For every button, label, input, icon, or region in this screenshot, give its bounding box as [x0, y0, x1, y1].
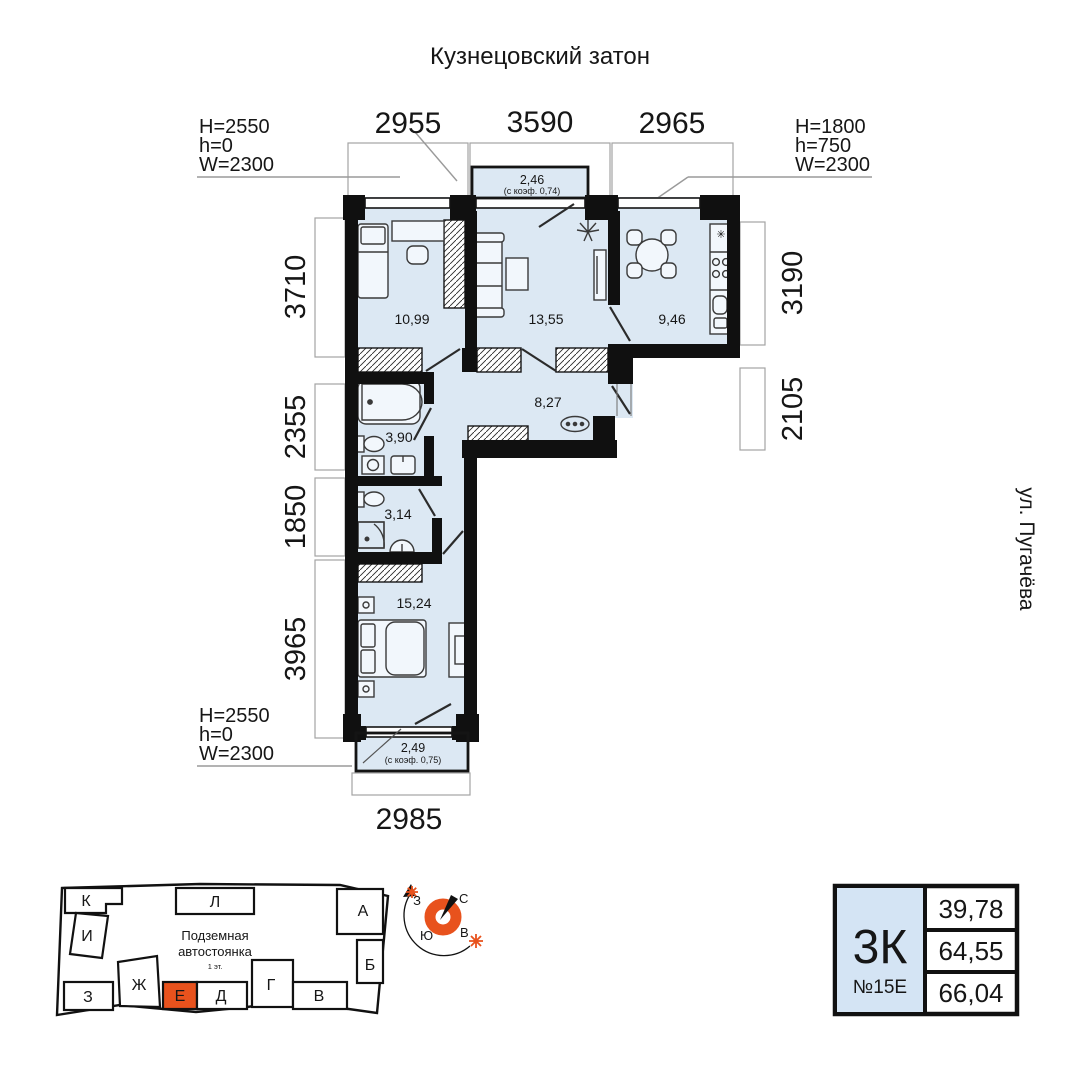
- block-d-label: Д: [216, 988, 227, 1005]
- area-value: 64,55: [938, 936, 1003, 966]
- parking-label-2: автостоянка: [178, 944, 253, 959]
- area-living: 13,55: [528, 311, 563, 327]
- floor-plan-canvas: Кузнецовский затон ул. Пугачёва 2955 359…: [0, 0, 1080, 1080]
- bed-single-icon: [358, 224, 388, 298]
- street-label: ул. Пугачёва: [1015, 487, 1038, 611]
- unit-info-card: 3К №15Е 39,78 64,55 66,04: [835, 886, 1017, 1014]
- spec-topright-3: W=2300: [795, 154, 870, 176]
- dim-bottom: 2985: [376, 803, 443, 836]
- sofa-icon: [474, 233, 504, 317]
- nightstand-icon: [358, 597, 374, 613]
- living-area-value: 39,78: [938, 894, 1003, 924]
- parking-label-1: Подземная: [181, 928, 248, 943]
- wardrobe-hatch: [444, 220, 465, 308]
- dim-right-2: 2105: [777, 377, 809, 442]
- dim-top-3: 2965: [639, 107, 706, 140]
- page-title: Кузнецовский затон: [430, 43, 650, 70]
- floor-plan-page: Кузнецовский затон ул. Пугачёва 2955 359…: [0, 0, 1080, 1080]
- site-plan: К И Л А Б З Ж Е Д Г В Подземная автостоя…: [57, 884, 388, 1015]
- dim-left-4: 3965: [280, 617, 312, 682]
- double-bed-icon: [358, 620, 426, 677]
- unit-type: 3К: [853, 921, 908, 974]
- area-balcony-bottom: 2,49: [401, 741, 425, 755]
- dim-left-1: 3710: [280, 255, 312, 320]
- spec-bottomleft-3: W=2300: [199, 743, 274, 765]
- block-zh-label: Ж: [132, 977, 147, 994]
- area-wc: 3,14: [384, 506, 411, 522]
- parking-label-3: 1 эт.: [208, 962, 223, 971]
- dim-left-2: 2355: [280, 395, 312, 460]
- area-bedroom1: 10,99: [394, 311, 429, 327]
- compass-north-label: С: [459, 891, 468, 906]
- bathtub-icon: [358, 380, 422, 424]
- block-l-label: Л: [210, 894, 221, 911]
- compass-south-label: Ю: [420, 928, 433, 943]
- dim-top-2: 3590: [507, 106, 574, 139]
- area-balcony-top: 2,46: [520, 173, 544, 187]
- unit-number: №15Е: [853, 977, 907, 998]
- dim-top-1: 2955: [375, 107, 442, 140]
- block-b-label: Б: [365, 957, 376, 974]
- compass-east-label: В: [460, 925, 469, 940]
- vent-icon: ✳: [716, 229, 725, 241]
- toilet-icon: [356, 492, 384, 507]
- area-bath: 3,90: [385, 429, 412, 445]
- wardrobe-hatch: [358, 348, 422, 372]
- tv-panel-icon: [594, 250, 606, 300]
- coef-balcony-bottom: (с коэф. 0,75): [385, 755, 442, 765]
- wardrobe-hatch: [358, 564, 422, 582]
- block-v-label: В: [314, 988, 325, 1005]
- compass-west-label: З: [413, 893, 421, 908]
- block-e-label: Е: [175, 988, 186, 1005]
- total-area-value: 66,04: [938, 978, 1003, 1008]
- compass: С З Ю В: [403, 884, 483, 956]
- area-bedroom2: 15,24: [396, 595, 431, 611]
- block-g-label: Г: [267, 977, 276, 994]
- nightstand-icon: [358, 681, 374, 697]
- wardrobe-hatch: [477, 348, 521, 372]
- block-i-label: И: [81, 928, 93, 945]
- washing-machine-icon: [362, 456, 384, 474]
- compass-ring: [430, 904, 456, 930]
- area-kitchen: 9,46: [658, 311, 685, 327]
- coffee-table-icon: [506, 258, 528, 290]
- dim-left-3: 1850: [280, 485, 312, 550]
- toilet-icon: [356, 436, 384, 452]
- block-k-label: К: [81, 893, 91, 910]
- spec-topleft-3: W=2300: [199, 154, 274, 176]
- sink-icon: [391, 456, 415, 474]
- coef-balcony-top: (с коэф. 0,74): [504, 186, 561, 196]
- wardrobe-hatch: [556, 348, 608, 372]
- area-hall: 8,27: [534, 394, 561, 410]
- block-z-label: З: [83, 989, 93, 1006]
- block-a-label: А: [358, 903, 369, 920]
- sunset-icon: [469, 934, 483, 948]
- dim-right-1: 3190: [777, 251, 809, 316]
